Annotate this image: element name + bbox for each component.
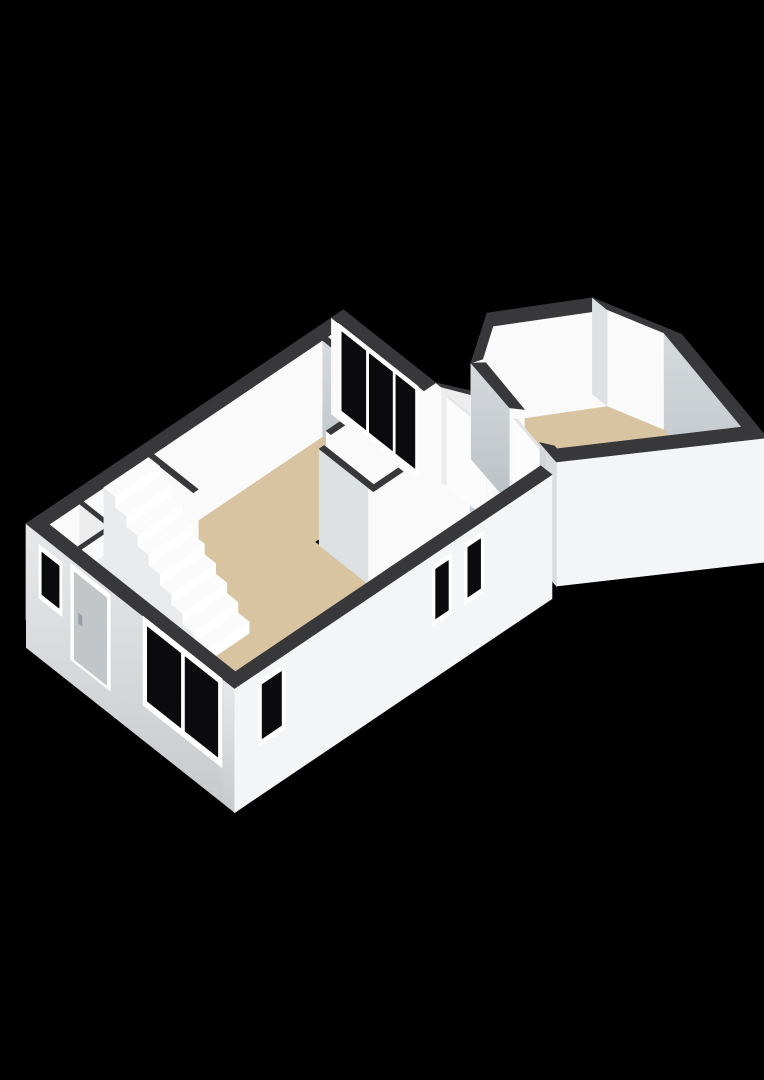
storage-wall-front-face (556, 438, 764, 586)
floorplan-3d-render (0, 0, 764, 1080)
side-window-2-pane (436, 561, 449, 619)
wall-rear-upper-face (424, 383, 436, 488)
rear-window-pane-3 (396, 375, 415, 469)
toilet-wall-south-face (369, 488, 374, 588)
corridor-wall-north-face (436, 383, 441, 484)
wall-front-right-face (223, 680, 234, 813)
front-door-handle (79, 613, 82, 626)
floorplan-stage (0, 0, 764, 1080)
storage-wall-chamfer-right-face (592, 298, 607, 406)
side-window-3-pane (468, 539, 481, 597)
